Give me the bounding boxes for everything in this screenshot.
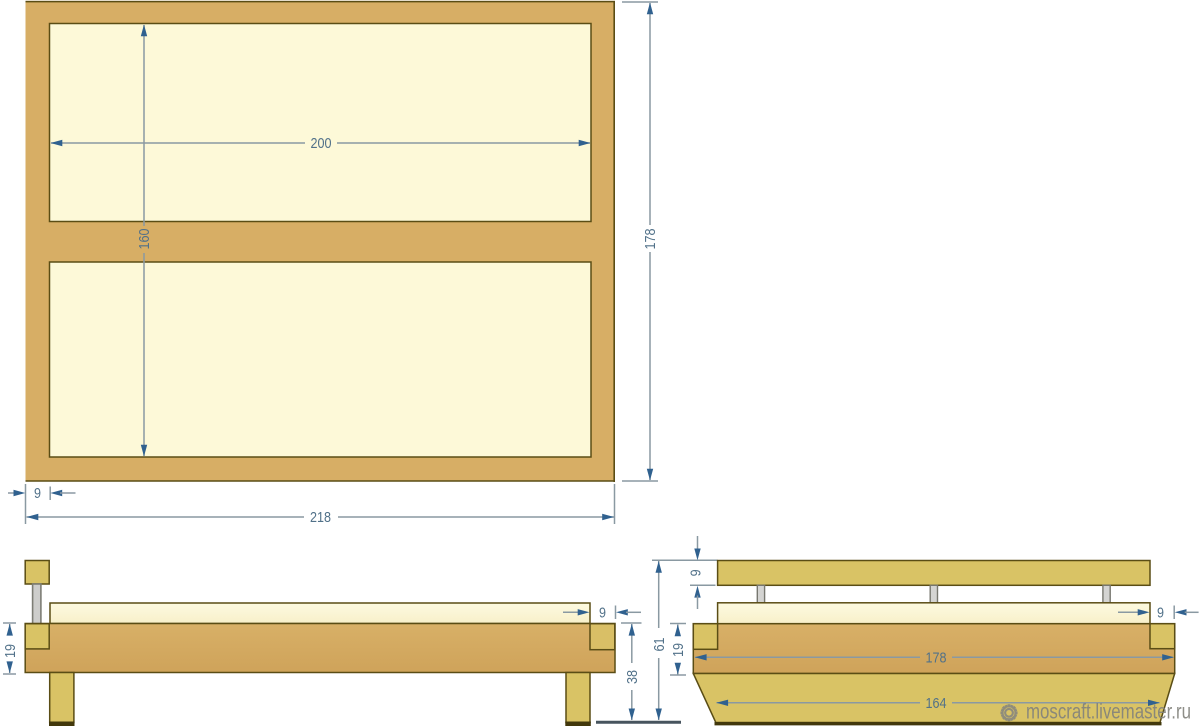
svg-text:9: 9 bbox=[688, 569, 705, 576]
svg-text:178: 178 bbox=[642, 229, 659, 250]
svg-text:9: 9 bbox=[1157, 605, 1164, 622]
svg-text:9: 9 bbox=[34, 485, 41, 502]
svg-text:38: 38 bbox=[624, 670, 641, 684]
svg-text:19: 19 bbox=[2, 644, 19, 658]
svg-text:178: 178 bbox=[926, 650, 947, 667]
svg-text:61: 61 bbox=[651, 638, 668, 652]
svg-text:164: 164 bbox=[926, 695, 947, 712]
svg-text:19: 19 bbox=[670, 643, 687, 657]
svg-text:moscraft.livemaster.ru: moscraft.livemaster.ru bbox=[1026, 700, 1191, 724]
svg-text:160: 160 bbox=[136, 229, 153, 250]
svg-text:218: 218 bbox=[310, 509, 331, 526]
svg-text:200: 200 bbox=[311, 135, 332, 152]
svg-text:9: 9 bbox=[599, 605, 606, 622]
